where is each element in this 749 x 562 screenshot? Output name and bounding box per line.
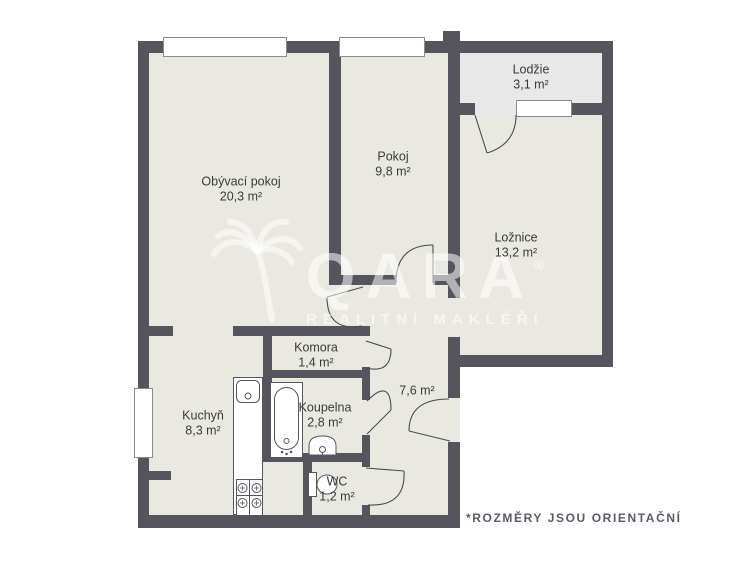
wall (270, 453, 362, 462)
disclaimer-note: *ROZMĚRY JSOU ORIENTAČNÍ (466, 511, 682, 525)
window-pokoj (339, 37, 425, 57)
room-label-hall: 7,6 m² (399, 384, 434, 399)
wall (362, 435, 370, 467)
room-label-wc: WC1,2 m² (319, 474, 354, 504)
wall (448, 337, 460, 398)
wall (602, 41, 613, 367)
floor-plan: QARA® REALITNÍ MAKLÉŘI Obývací pokoj20,3… (0, 0, 749, 562)
window-kitchen (134, 388, 153, 458)
room-label-living: Obývací pokoj20,3 m² (201, 174, 280, 204)
room-label-koupelna: Koupelna2,8 m² (299, 400, 352, 430)
wall (443, 31, 460, 41)
window-loggia (516, 100, 572, 117)
wall (362, 505, 370, 515)
room-label-loznice: Ložnice13,2 m² (494, 230, 537, 260)
wall (448, 355, 613, 367)
wall (138, 326, 173, 336)
wall (138, 515, 460, 528)
wall (138, 471, 171, 480)
room-label-lodzie: Lodžie3,1 m² (513, 62, 550, 92)
wall (571, 103, 613, 115)
room-label-pokoj: Pokoj9,8 m² (375, 149, 410, 179)
wall (303, 462, 312, 515)
wall (263, 336, 272, 462)
watermark-tagline: REALITNÍ MAKLÉŘI (285, 311, 565, 328)
wall (448, 442, 460, 515)
room-label-komora: Komora1,4 m² (294, 340, 338, 370)
window-living (163, 37, 287, 57)
wall (263, 370, 370, 378)
room-label-kuchyn: Kuchyň8,3 m² (182, 408, 224, 438)
